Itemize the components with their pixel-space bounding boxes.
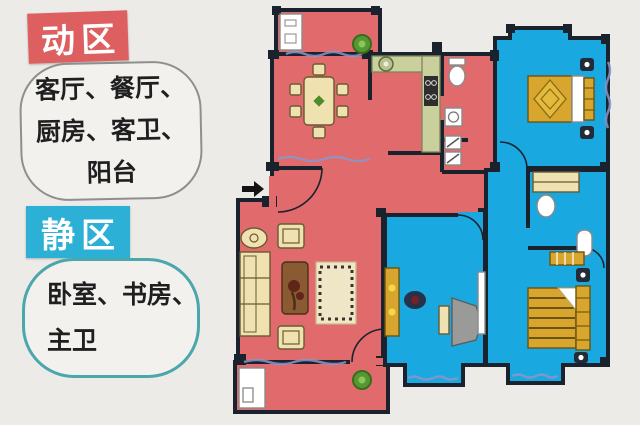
guest-toilet-tank <box>449 58 465 65</box>
balcony-door-opening <box>350 358 383 365</box>
rug <box>316 262 356 324</box>
active-zone-line-1: 客厅、餐厅、 <box>21 66 200 112</box>
bedroom-door-opening <box>500 164 526 172</box>
study-cabinet <box>439 306 449 334</box>
tv-shelf <box>385 268 399 336</box>
balcony-top-appliance <box>280 14 302 50</box>
active-zone-line-2: 厨房、客卫、 <box>22 108 201 154</box>
active-zone-badge: 动区 <box>27 10 129 63</box>
active-zone-line-3: 阳台 <box>22 150 201 196</box>
washing-machine <box>445 108 462 126</box>
master-toilet <box>537 195 555 217</box>
active-zone-bubble: 客厅、餐厅、 厨房、客卫、 阳台 <box>19 60 204 202</box>
floor-plan <box>228 0 618 425</box>
quiet-zone-badge-label: 静区 <box>41 208 121 257</box>
side-table <box>241 228 267 248</box>
armchair-bottom <box>278 326 304 349</box>
entrance-arrow-icon <box>242 181 264 197</box>
guest-toilet <box>449 66 465 86</box>
study-room <box>385 215 485 385</box>
study-door-panel <box>478 272 485 334</box>
dresser <box>550 252 584 265</box>
quiet-zone-line-1: 卧室、书房、 <box>47 272 197 318</box>
infographic-canvas: 动区 客厅、餐厅、 厨房、客卫、 阳台 静区 卧室、书房、 主卫 <box>0 0 640 425</box>
armchair-top <box>278 224 304 248</box>
quiet-zone-line-2: 主卫 <box>47 318 197 364</box>
stove <box>424 76 438 106</box>
active-zone-badge-label: 动区 <box>40 11 122 63</box>
quiet-zone-bubble: 卧室、书房、 主卫 <box>22 258 200 378</box>
quiet-zone-badge: 静区 <box>26 206 130 258</box>
entry-opening <box>269 176 276 214</box>
